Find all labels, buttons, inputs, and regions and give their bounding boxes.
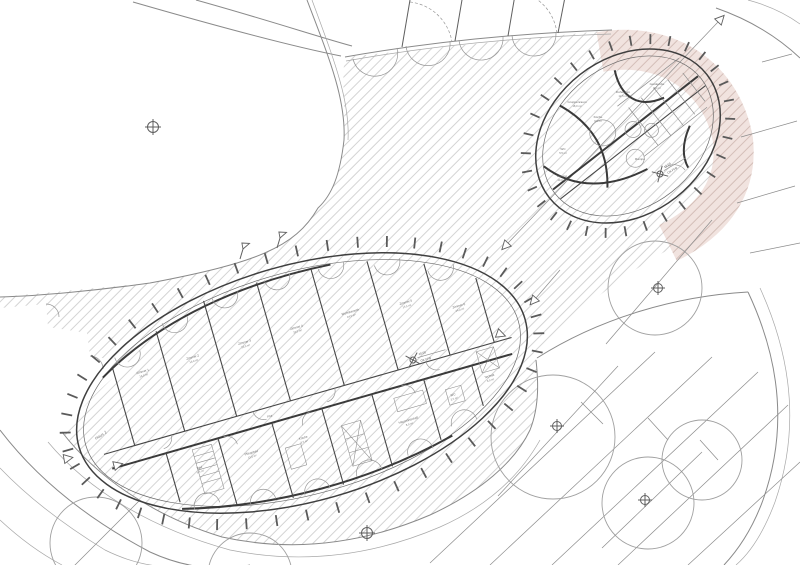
flag-marker bbox=[240, 241, 251, 259]
room-area: 8,0 m² bbox=[653, 86, 661, 90]
room-label: Gruppenraum bbox=[567, 100, 587, 104]
room-area: 5,5 m² bbox=[559, 151, 567, 155]
benchmark-symbol bbox=[145, 119, 161, 135]
room-label: Küche bbox=[594, 115, 603, 119]
room-area: 18,0 m² bbox=[572, 104, 581, 108]
room-label: Garderobe bbox=[650, 82, 665, 86]
room-label: Leitung bbox=[557, 174, 567, 178]
room-label: WC bbox=[560, 147, 566, 151]
site-plan-page: Zimmer 1 16,0 m² Zimmer 2 16,0 m² Zimmer… bbox=[0, 0, 800, 565]
room-label: Ruheraum bbox=[616, 90, 631, 94]
room-area: 12,5 m² bbox=[618, 94, 627, 98]
tree bbox=[50, 497, 142, 565]
room-area: 10,0 m² bbox=[557, 178, 566, 182]
site-plan-drawing: Zimmer 1 16,0 m² Zimmer 2 16,0 m² Zimmer… bbox=[0, 0, 800, 565]
plaza-hatch-area bbox=[0, 30, 731, 545]
room-label: Rampe bbox=[635, 157, 645, 161]
room-area: 9,5 m² bbox=[594, 119, 602, 123]
